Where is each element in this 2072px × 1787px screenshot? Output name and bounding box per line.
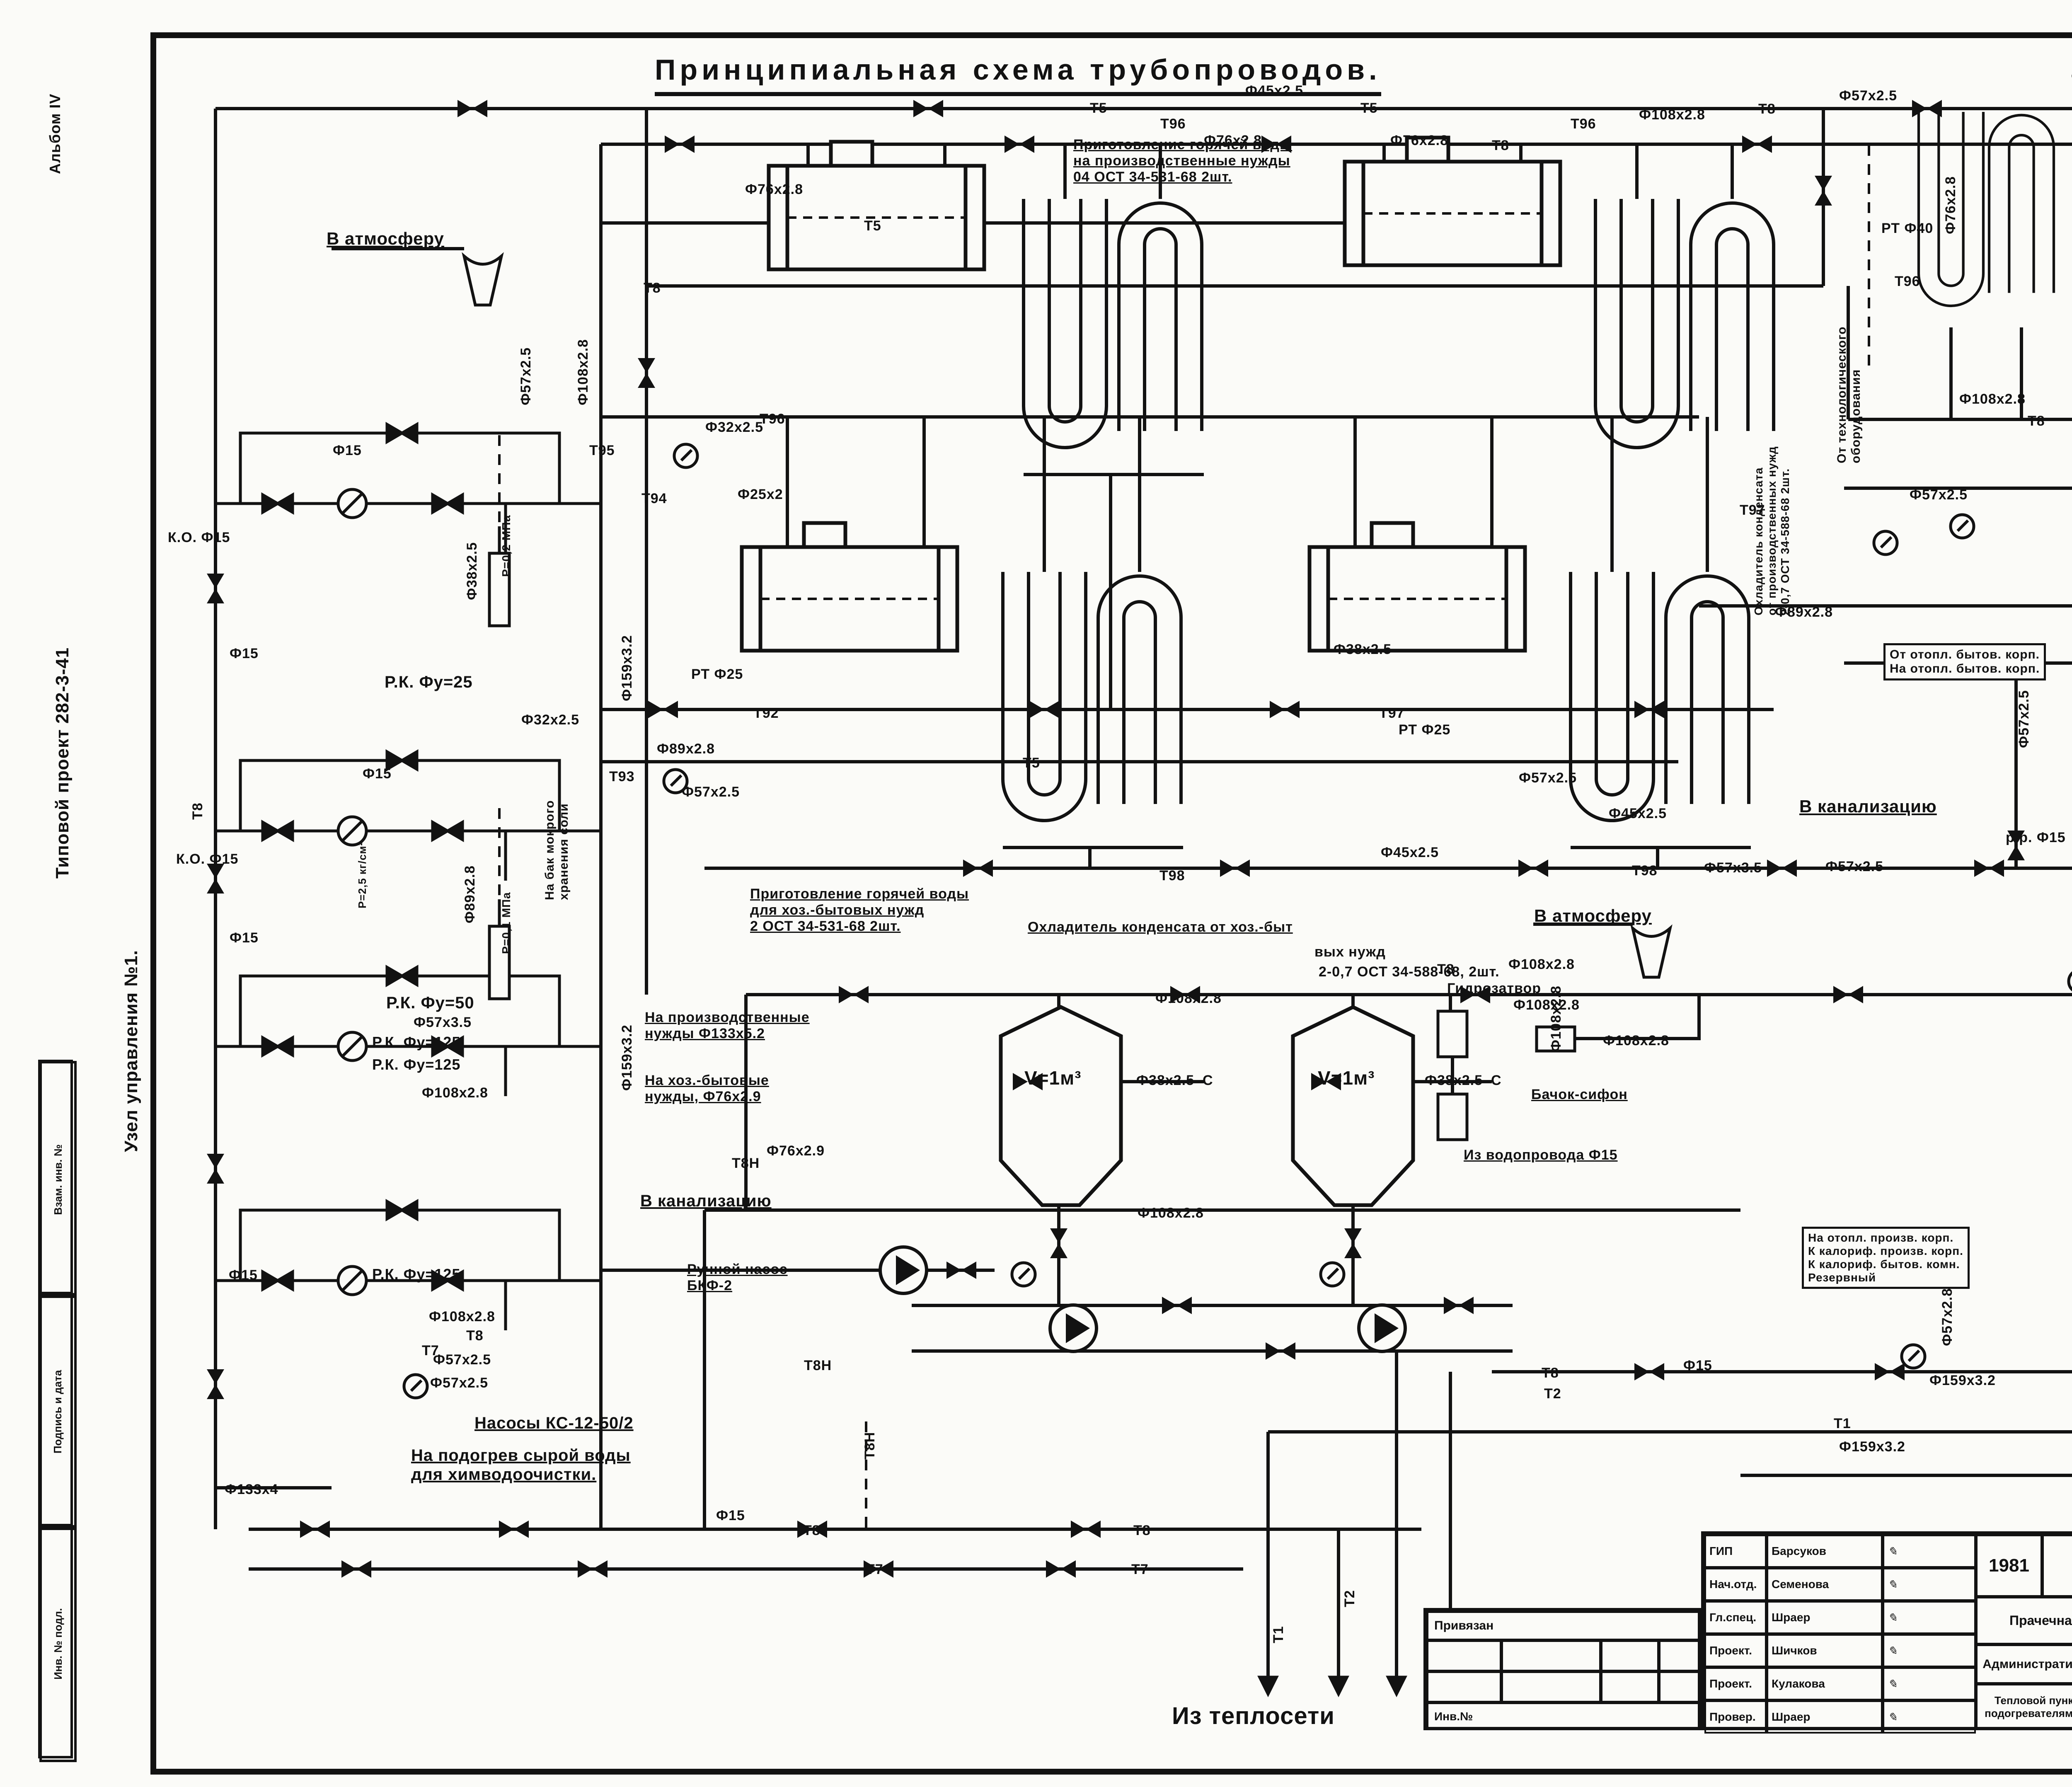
pipe-label: Т1 xyxy=(1271,1626,1287,1643)
signature-autograph: ✎ xyxy=(1883,1667,1976,1700)
annotation: На отопл. произв. корп. К калориф. произ… xyxy=(1802,1227,1970,1289)
pipe-label: С xyxy=(1203,1073,1213,1089)
drawing-name: Тепловой пункт. Вариант с пароводяными п… xyxy=(1976,1684,2072,1730)
signature-autograph: ✎ xyxy=(1883,1601,1976,1634)
pipe-label: Т98 xyxy=(1159,868,1185,884)
pipe-label: С xyxy=(1491,1073,1502,1089)
pipe-label: Ф32х2.5 xyxy=(705,419,763,436)
pipe-label: Ф108х2.8 xyxy=(1603,1033,1669,1049)
document-number: 282-3-41 xyxy=(2042,1535,2072,1597)
pipe-label: Т8Н xyxy=(862,1432,878,1460)
annotation: Гидрозатвор xyxy=(1447,981,1541,997)
pipe-label: Ф108х2.8 xyxy=(1548,986,1564,1052)
pipe-label: Ф57х3.5 xyxy=(414,1015,472,1031)
pipe-label: Ф57х2.5 xyxy=(433,1352,491,1368)
pipe-label: р.р. Ф15 xyxy=(2006,830,2066,846)
schematic-drawing xyxy=(0,0,2072,1787)
pipe-label: Т7 xyxy=(866,1562,884,1578)
annotation: Из теплосети xyxy=(1172,1702,1335,1730)
pipe-label: Т98 xyxy=(1632,863,1658,879)
pipe-label: РТ Ф40 xyxy=(1881,220,1933,237)
pipe-label: Ф38х2.5 xyxy=(464,542,480,600)
pipe-label: Т5 xyxy=(1090,100,1107,116)
annotation: На хоз.-бытовые нужды, Ф76х2.9 xyxy=(645,1073,769,1105)
pipe-label: Ф15 xyxy=(716,1508,745,1524)
pipe-label: Ф108х2.8 xyxy=(1508,956,1575,973)
pipe-label: Ф108х2.8 xyxy=(1639,107,1705,123)
pipe-label: Т95 xyxy=(589,443,615,459)
pipe-label: Т96 xyxy=(1160,116,1186,132)
tank-label: V=1м³ xyxy=(1318,1067,1375,1089)
frame-cell-podpis: Подпись и дата xyxy=(39,1293,77,1530)
pipe-label: РТ Ф25 xyxy=(691,666,743,683)
margin-project: Типовой проект 282-3-41 xyxy=(52,647,73,879)
pipe-label: Ф108х2.8 xyxy=(429,1309,495,1325)
frame-cell-vzam: Взам. инв. № xyxy=(39,1061,77,1298)
pipe-label: Ф15 xyxy=(230,930,259,946)
pipe-label: Т2 xyxy=(1544,1386,1561,1402)
pipe-label: Ф57х2.5 xyxy=(1839,88,1897,104)
pipe-label: Т8 xyxy=(1492,138,1509,154)
annotation: вых нужд xyxy=(1314,944,1386,960)
pipe-label: Т93 xyxy=(609,769,635,785)
signature-role: Проект. xyxy=(1704,1634,1767,1667)
signature-table: ГИПБарсуков✎Нач.отд.Семенова✎Гл.спец.Шра… xyxy=(1704,1535,1976,1734)
pipe-label: Ф57х2.5 xyxy=(1825,859,1883,875)
pipe-label: Ф57х2.5 xyxy=(518,347,534,405)
annotation: На производственные нужды Ф133х5.2 xyxy=(645,1010,810,1042)
pipe-label: Ф45х2.5 xyxy=(1609,806,1667,822)
pipe-label: Т8 xyxy=(190,802,206,820)
pipe-label: Т8Н xyxy=(804,1358,832,1374)
pipe-label: Р.К. Фу=50 xyxy=(386,994,474,1013)
pipe-label: Ф15 xyxy=(1683,1358,1712,1374)
annotation: Приготовление горячей воды для хоз.-быто… xyxy=(750,886,969,934)
project-title: Прачечная производительностью 5 тонн сух… xyxy=(1976,1597,2072,1644)
pipe-label: Ф57х2.5 xyxy=(1910,487,1968,503)
pipe-label: Ф38х2.5 xyxy=(1334,642,1392,658)
annotation: Ручной насос БКФ-2 xyxy=(687,1262,788,1294)
inventory-label: Инв.№ xyxy=(1427,1702,1701,1730)
signature-autograph: ✎ xyxy=(1883,1634,1976,1667)
year-cell: 1981 xyxy=(1976,1535,2042,1597)
pipe-label: Т8 xyxy=(466,1328,484,1344)
signature-role: Нач.отд. xyxy=(1704,1568,1767,1601)
pipe-label: Ф108х2.8 xyxy=(575,339,591,405)
title-block: ГИПБарсуков✎Нач.отд.Семенова✎Гл.спец.Шра… xyxy=(1701,1531,2072,1730)
pipe-label: Ф15 xyxy=(230,646,259,662)
pipe-label: Т5 xyxy=(1023,755,1040,771)
annotation: 2-0,7 ОСТ 34-588-68, 2шт. xyxy=(1319,964,1500,980)
signature-name: Барсуков xyxy=(1767,1535,1883,1568)
pipe-label: Т8Н xyxy=(732,1155,760,1172)
pipe-label: РТ Ф25 xyxy=(1399,722,1450,738)
signature-role: Гл.спец. xyxy=(1704,1601,1767,1634)
tank-label: V=1м³ xyxy=(1024,1067,1081,1089)
annotation: В атмосферу xyxy=(1534,906,1652,926)
signature-name: Шраер xyxy=(1767,1700,1883,1734)
pipe-label: Ф76х2.8 xyxy=(1943,176,1959,234)
pipe-label: Т8 xyxy=(803,1523,821,1539)
margin-album: Альбом IV xyxy=(46,94,63,174)
pipe-label: Ф108х2.8 xyxy=(1959,391,2026,407)
pipe-label: Ф57х2.8 xyxy=(1939,1288,1956,1346)
pipe-label: Ф108х2.8 xyxy=(422,1085,488,1101)
annotation: В канализацию xyxy=(640,1192,772,1211)
pipe-label: Р.К. Фу=25 xyxy=(385,673,473,692)
signature-name: Семенова xyxy=(1767,1568,1883,1601)
pipe-label: Т8 xyxy=(1542,1365,1559,1381)
drawing-title: Принципиальная схема трубопроводов. xyxy=(655,53,1381,96)
pipe-label: Ф159х3.2 xyxy=(1929,1373,1996,1389)
pipe-label: Т2 xyxy=(1342,1590,1358,1607)
pipe-label: Ф57х2.5 xyxy=(682,784,740,800)
pipe-label: Т7 xyxy=(1131,1562,1149,1578)
pipe-label: Р.К. Фу=125 xyxy=(372,1056,460,1073)
pipe-label: Т8 xyxy=(1437,961,1455,978)
pipe-label: К.О. Ф15 xyxy=(168,530,230,546)
sheet-title: Административно-бытовые помещения. xyxy=(1976,1644,2072,1684)
pipe-label: Ф108х2.8 xyxy=(1155,990,1222,1007)
signature-role: Проект. xyxy=(1704,1667,1767,1700)
signature-role: ГИП xyxy=(1704,1535,1767,1568)
pipe-label: Ф89х2.8 xyxy=(462,865,478,923)
pipe-label: Т1 xyxy=(1834,1416,1851,1432)
signature-name: Шичков xyxy=(1767,1634,1883,1667)
pipe-label: Р=0,1 МПа xyxy=(500,892,513,954)
annotation: Насосы КС-12-50/2 xyxy=(474,1414,634,1433)
annotation: Охладитель конденсата от хоз.-быт xyxy=(1028,919,1293,935)
annotation: Приготовление горячей воды на производст… xyxy=(1073,137,1292,185)
attachment-table: Привязан Инв.№ xyxy=(1423,1608,1701,1730)
pipe-label: Т96 xyxy=(760,411,785,427)
pipe-label: Ф133х4 xyxy=(225,1482,278,1498)
signature-name: Кулакова xyxy=(1767,1667,1883,1700)
pipe-label: Ф159х3.2 xyxy=(619,1024,635,1091)
annotation: Бачок-сифон xyxy=(1531,1087,1628,1103)
pipe-label: Ф15 xyxy=(333,443,362,459)
pipe-label: Т8 xyxy=(644,280,661,296)
signature-role: Провер. xyxy=(1704,1700,1767,1734)
pipe-label: Ф108х2.8 xyxy=(1138,1205,1204,1221)
pipe-label: Т5 xyxy=(1360,100,1378,116)
pipe-label: Т96 xyxy=(1895,274,1920,290)
section-label: Узел управления №1. xyxy=(121,950,142,1152)
annotation: На бак мокрого хранения соли xyxy=(543,800,571,900)
pipe-label: Ф15 xyxy=(363,766,392,782)
pipe-label: Ф159х3.2 xyxy=(1839,1439,1905,1455)
pipe-label: Т96 xyxy=(1571,116,1596,132)
pipe-label: Т8 xyxy=(1133,1523,1151,1539)
annotation: Из водопровода Ф15 xyxy=(1464,1147,1618,1163)
pipe-label: Т8 xyxy=(2028,413,2045,429)
pipe-label: Т97 xyxy=(1379,705,1405,722)
signature-name: Шраер xyxy=(1767,1601,1883,1634)
annotation: От технологического оборудования xyxy=(1835,327,1863,463)
pipe-label: Ф32х2.5 xyxy=(521,712,579,728)
annotation: От отопл. бытов. корп. На отопл. бытов. … xyxy=(1883,643,2046,680)
pipe-label: Ф57х2.5 xyxy=(1519,770,1577,786)
signature-autograph: ✎ xyxy=(1883,1535,1976,1568)
pipe-label: Ф38х2.5 xyxy=(1136,1073,1194,1089)
pipe-label: Р.К. Фу=125 xyxy=(372,1034,460,1051)
pipe-label: Ф76х2.9 xyxy=(767,1143,825,1159)
pipe-label: Ф76х2.8 xyxy=(745,182,803,198)
pipe-label: Ф57х2.5 xyxy=(430,1375,488,1391)
pipe-label: Т94 xyxy=(641,491,667,507)
annotation: В канализацию xyxy=(1799,797,1937,816)
pipe-label: Ф76х2.8 xyxy=(1390,133,1448,149)
signature-autograph: ✎ xyxy=(1883,1700,1976,1734)
pipe-label: Ф15 xyxy=(229,1267,258,1283)
pipe-label: Ф45х2.5 xyxy=(1381,845,1439,861)
annotation: В атмосферу xyxy=(327,229,444,249)
attachment-label: Привязан xyxy=(1427,1611,1701,1640)
annotation: Охладитель конденсата от производственны… xyxy=(1752,446,1792,615)
pipe-label: Т8 xyxy=(1758,101,1776,117)
annotation: На подогрев сырой воды для химводоочистк… xyxy=(411,1446,631,1484)
pipe-label: Т92 xyxy=(753,705,779,722)
pipe-label: Ф57х3.5 xyxy=(1704,860,1762,876)
pipe-label: Т5 xyxy=(864,218,881,234)
pipe-label: Р=2,5 кг/см² xyxy=(356,842,369,908)
pipe-label: К.О. Ф15 xyxy=(176,851,238,867)
pipe-label: Р.К. Фу=125 xyxy=(372,1266,460,1283)
pipe-label: Ф57х2.5 xyxy=(2016,690,2032,748)
pipe-label: Ф159х3.2 xyxy=(619,635,635,701)
frame-cell-inv: Инв. № подл. xyxy=(39,1525,77,1762)
pipe-label: Ф89х2.8 xyxy=(657,741,715,757)
pipe-label: Ф108х2.8 xyxy=(1513,997,1580,1013)
pipe-label: Ф38х2.5 xyxy=(1425,1073,1483,1089)
pipe-label: Ф25х2 xyxy=(738,487,783,503)
signature-autograph: ✎ xyxy=(1883,1568,1976,1601)
drawing-sheet: Альбом IVТиповой проект 282-3-41Узел упр… xyxy=(0,0,2072,1787)
pipe-label: Р=0,2 МПа xyxy=(500,515,513,577)
